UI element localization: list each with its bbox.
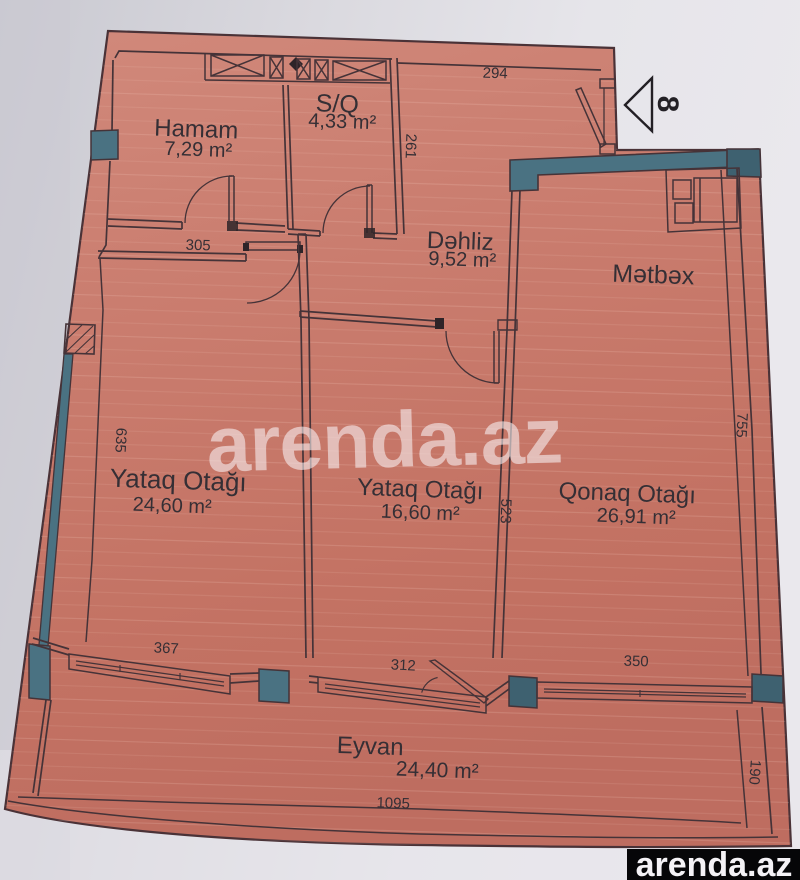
svg-text:Qonaq Otağı: Qonaq Otağı: [558, 478, 696, 510]
svg-text:312: 312: [390, 656, 416, 674]
svg-text:24,60 m²: 24,60 m²: [132, 494, 212, 519]
svg-text:7,29 m²: 7,29 m²: [164, 138, 233, 162]
svg-text:26,91 m²: 26,91 m²: [596, 505, 676, 530]
svg-text:9,52 m²: 9,52 m²: [428, 248, 497, 272]
svg-text:8: 8: [651, 96, 684, 113]
svg-text:Mətbəx: Mətbəx: [612, 260, 695, 291]
svg-text:635: 635: [111, 427, 129, 453]
svg-text:Eyvan: Eyvan: [336, 732, 404, 761]
svg-text:4,33 m²: 4,33 m²: [308, 110, 377, 134]
svg-text:367: 367: [153, 639, 179, 657]
svg-text:arenda.az: arenda.az: [205, 390, 563, 488]
svg-text:294: 294: [482, 65, 508, 83]
svg-text:755: 755: [732, 412, 750, 438]
svg-text:24,40 m²: 24,40 m²: [395, 758, 479, 784]
svg-text:305: 305: [185, 237, 211, 255]
svg-text:350: 350: [623, 653, 649, 671]
svg-text:arenda.az: arenda.az: [636, 846, 793, 880]
svg-text:190: 190: [745, 759, 764, 785]
svg-text:16,60 m²: 16,60 m²: [380, 501, 460, 526]
svg-text:261: 261: [402, 133, 420, 159]
svg-text:1095: 1095: [376, 794, 410, 812]
svg-text:523: 523: [497, 498, 515, 524]
